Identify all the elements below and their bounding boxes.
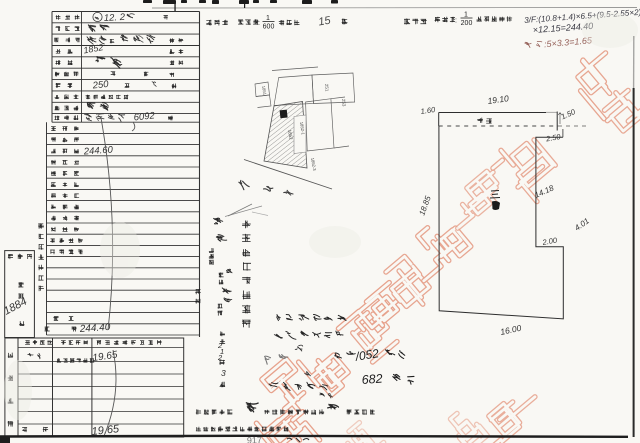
svg-text:244.40: 244.40 [78, 322, 111, 335]
svg-text::: : [258, 20, 260, 27]
svg-text:600: 600 [263, 24, 275, 31]
svg-text:200: 200 [461, 20, 473, 27]
svg-text:244.60: 244.60 [82, 144, 113, 157]
svg-text:3: 3 [221, 368, 226, 378]
svg-text:1: 1 [266, 15, 270, 22]
svg-text:12. 2: 12. 2 [104, 12, 126, 24]
svg-text:251: 251 [324, 84, 330, 92]
svg-text::: : [455, 18, 457, 25]
svg-text:250: 250 [91, 79, 110, 92]
svg-text:682: 682 [361, 372, 383, 387]
svg-text:6092: 6092 [133, 110, 156, 123]
svg-text:253: 253 [341, 99, 347, 107]
svg-text:1: 1 [464, 12, 468, 19]
